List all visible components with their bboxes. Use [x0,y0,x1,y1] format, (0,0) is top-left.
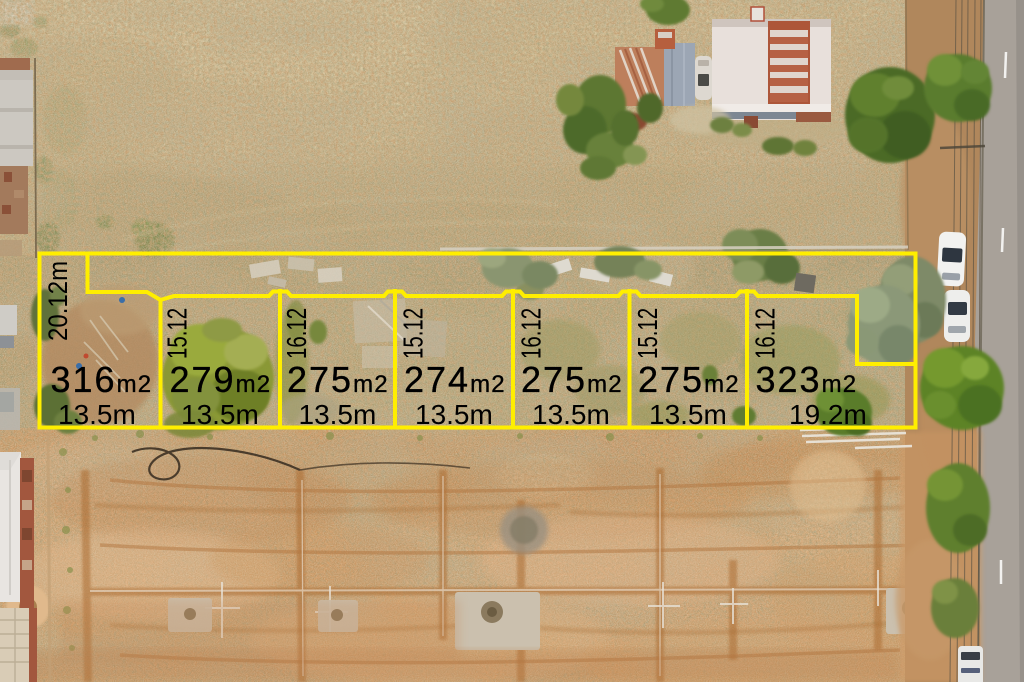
svg-text:13.5m: 13.5m [299,399,377,430]
svg-text:13.5m: 13.5m [415,399,493,430]
svg-text:13.5m: 13.5m [58,399,136,430]
svg-text:16.12: 16.12 [751,308,782,359]
svg-text:15.12: 15.12 [399,308,430,359]
svg-text:16.12: 16.12 [282,308,313,359]
svg-text:16.12: 16.12 [517,308,548,359]
svg-text:13.5m: 13.5m [532,399,610,430]
svg-text:15.12: 15.12 [633,308,664,359]
svg-text:13.5m: 13.5m [649,399,727,430]
svg-text:19.2m: 19.2m [789,399,867,430]
svg-text:20.12m: 20.12m [44,261,74,341]
svg-text:13.5m: 13.5m [181,399,259,430]
svg-text:15.12: 15.12 [163,308,194,359]
